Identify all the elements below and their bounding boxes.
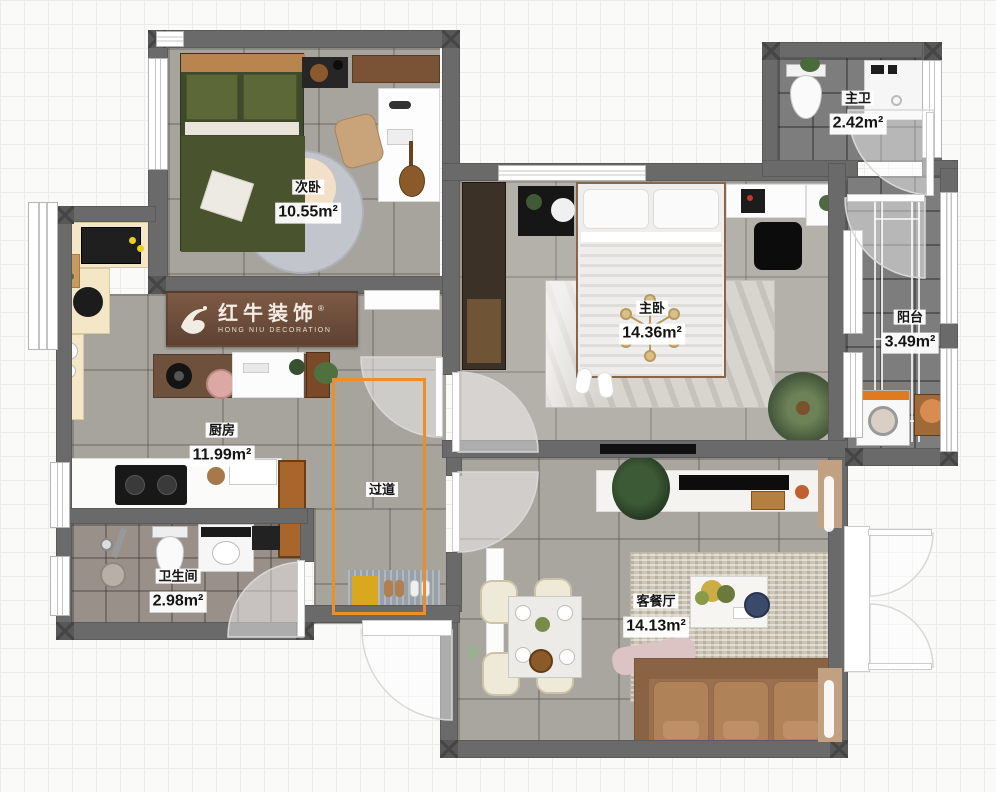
plate: [551, 198, 575, 222]
room-name: 卫生间: [155, 569, 200, 584]
bull-logo-icon: [176, 301, 212, 337]
plant-small: [800, 56, 820, 72]
plate: [559, 649, 575, 665]
dresser-mat[interactable]: [302, 57, 348, 88]
jar: [333, 60, 343, 70]
pillow: [186, 74, 238, 120]
wood-shelf[interactable]: [352, 55, 440, 83]
curtain-sheer: [824, 476, 834, 532]
basin: [212, 541, 240, 565]
plant-small: [289, 359, 305, 375]
bathroom-cabinet-dark: [252, 526, 280, 550]
sofa-arm: [635, 675, 649, 749]
wall: [762, 42, 940, 58]
room-label-balcony[interactable]: 阳台 3.49m²: [882, 309, 939, 354]
door-leaf[interactable]: [847, 194, 925, 202]
room-area: 3.49m²: [882, 333, 939, 354]
pillow: [653, 189, 719, 229]
window[interactable]: [50, 462, 70, 528]
shower-handset[interactable]: [100, 528, 140, 564]
door-leaf[interactable]: [297, 560, 305, 637]
burner: [125, 475, 145, 495]
art-frame: [741, 189, 765, 213]
plate: [557, 605, 573, 621]
window[interactable]: [940, 192, 958, 324]
wall-corner: [830, 740, 848, 758]
wall: [56, 508, 308, 524]
washing-machine[interactable]: [856, 390, 910, 446]
pillow: [583, 189, 649, 229]
lemon: [137, 245, 144, 252]
decor-plate-blue: [744, 592, 770, 618]
door-leaf[interactable]: [452, 372, 460, 452]
bathroom-vanity[interactable]: [198, 524, 254, 572]
headboard: [181, 54, 305, 72]
dining-table[interactable]: [508, 596, 582, 678]
pot: [795, 485, 809, 499]
room-name: 阳台: [894, 310, 926, 325]
decor-dot: [466, 646, 479, 659]
room-label-master-bedroom[interactable]: 主卧 14.36m²: [619, 300, 685, 345]
wall-corner: [762, 42, 780, 60]
room-area: 11.99m²: [190, 446, 255, 467]
wall: [440, 740, 848, 758]
guitar-body: [399, 165, 425, 197]
food-bowl: [529, 649, 553, 673]
room-label-hallway[interactable]: 过道: [366, 481, 398, 499]
window[interactable]: [843, 352, 863, 438]
sunglasses: [389, 101, 411, 109]
tray: [310, 64, 328, 82]
wall: [56, 622, 314, 640]
door-arc-french-bottom[interactable]: [870, 604, 933, 667]
rack-bar: [874, 218, 920, 220]
door-leaf[interactable]: [452, 472, 460, 552]
plant-small: [526, 194, 542, 210]
room-label-master-bath[interactable]: 主卫 2.42m²: [830, 90, 887, 135]
window[interactable]: [156, 31, 184, 47]
brand-name-en: HONG NIU DECORATION: [218, 327, 332, 334]
pillow: [243, 74, 297, 120]
curtain-sheer: [824, 680, 834, 738]
wall-corner: [56, 206, 74, 224]
brand-banner: 红牛装饰® HONG NIU DECORATION: [166, 291, 358, 347]
wall: [446, 552, 462, 612]
wall-corner: [440, 740, 458, 758]
floor-plan: 红牛装饰® HONG NIU DECORATION 次卧 10.55m² 主卧 …: [0, 0, 996, 792]
plant-tv[interactable]: [612, 456, 670, 520]
kitchen-sink: [81, 227, 141, 264]
desk-chair-black[interactable]: [754, 222, 802, 270]
mirror: [243, 363, 269, 373]
desk-master[interactable]: [726, 184, 806, 218]
wall: [762, 42, 778, 176]
plate: [515, 605, 531, 621]
wall: [148, 30, 460, 48]
nightstand[interactable]: [518, 186, 574, 236]
french-door-leaf[interactable]: [868, 529, 932, 536]
room-name: 主卫: [842, 91, 874, 106]
room-name: 客餐厅: [633, 594, 678, 609]
door-leaf[interactable]: [435, 357, 443, 437]
room-area: 2.42m²: [830, 114, 887, 135]
toilet-master[interactable]: [786, 64, 826, 122]
room-label-living-dining[interactable]: 客餐厅 14.13m²: [623, 593, 689, 638]
washer-drum: [868, 406, 898, 436]
room-label-kitchen[interactable]: 厨房 11.99m²: [190, 422, 255, 467]
pan: [73, 287, 103, 317]
tv: [679, 475, 789, 490]
room-area: 14.13m²: [623, 617, 689, 638]
guitar-neck: [409, 141, 413, 167]
room-area: 10.55m²: [275, 203, 341, 224]
window[interactable]: [498, 165, 646, 181]
wardrobe[interactable]: [462, 182, 506, 370]
entry-door-leaf[interactable]: [362, 620, 452, 636]
window[interactable]: [940, 348, 958, 452]
plant-pot: [796, 401, 810, 415]
flowers-green: [695, 591, 709, 605]
room-name: 次卧: [292, 180, 324, 195]
room-label-bathroom[interactable]: 卫生间 2.98m²: [150, 568, 207, 613]
window[interactable]: [50, 556, 70, 616]
room-name: 过道: [366, 482, 398, 497]
lemon: [129, 237, 136, 244]
washer-top: [857, 391, 909, 400]
art-dot: [747, 195, 753, 201]
registered-mark: ®: [318, 304, 324, 313]
brand-text: 红牛装饰® HONG NIU DECORATION: [218, 304, 332, 334]
vanity-table[interactable]: [232, 352, 304, 398]
sheet-fold: [185, 122, 299, 135]
wall-shelf-white[interactable]: [364, 290, 440, 310]
record-center: [174, 371, 184, 381]
flowers-green: [717, 585, 735, 603]
wall-corner: [442, 30, 460, 48]
spice-bowl: [207, 467, 225, 485]
toilet-bowl: [790, 75, 822, 119]
wall-corner: [148, 276, 166, 294]
wall-corner: [845, 448, 863, 466]
burner: [157, 475, 177, 495]
centerpiece: [535, 617, 550, 632]
shower-head: [100, 538, 113, 551]
room-label-secondary-bedroom[interactable]: 次卧 10.55m²: [275, 179, 341, 224]
sofa-back: [635, 659, 847, 679]
french-door-frame[interactable]: [844, 526, 870, 672]
french-door-leaf[interactable]: [868, 663, 932, 670]
shower-bar: [111, 528, 127, 558]
wood-box: [751, 491, 785, 510]
vanity-top: [201, 527, 251, 537]
wall-tv[interactable]: [600, 444, 696, 454]
seat-front: [663, 721, 699, 739]
room-area: 14.36m²: [619, 324, 685, 345]
seat-front: [723, 721, 759, 739]
room-name: 厨房: [206, 423, 238, 438]
seat-front: [783, 721, 819, 739]
shower-control: [871, 65, 884, 74]
bay-window[interactable]: [28, 202, 58, 350]
sheet-fold: [581, 232, 721, 242]
window[interactable]: [843, 230, 863, 334]
room-area: 2.98m²: [150, 592, 207, 613]
floor-drain: [100, 562, 126, 588]
wardrobe-shelf: [467, 299, 501, 363]
door-arc-french-top[interactable]: [870, 533, 933, 596]
room-name: 主卧: [636, 301, 668, 316]
door-arc-entry[interactable]: [362, 630, 452, 720]
wall-corner: [924, 42, 942, 60]
wall: [442, 30, 460, 375]
wall-corner: [56, 622, 74, 640]
door-leaf[interactable]: [926, 112, 934, 196]
desk-secondary[interactable]: [378, 88, 440, 202]
shower-control: [888, 65, 897, 74]
brand-name-cn: 红牛装饰: [218, 303, 318, 325]
window[interactable]: [148, 58, 168, 170]
drain: [891, 95, 902, 106]
